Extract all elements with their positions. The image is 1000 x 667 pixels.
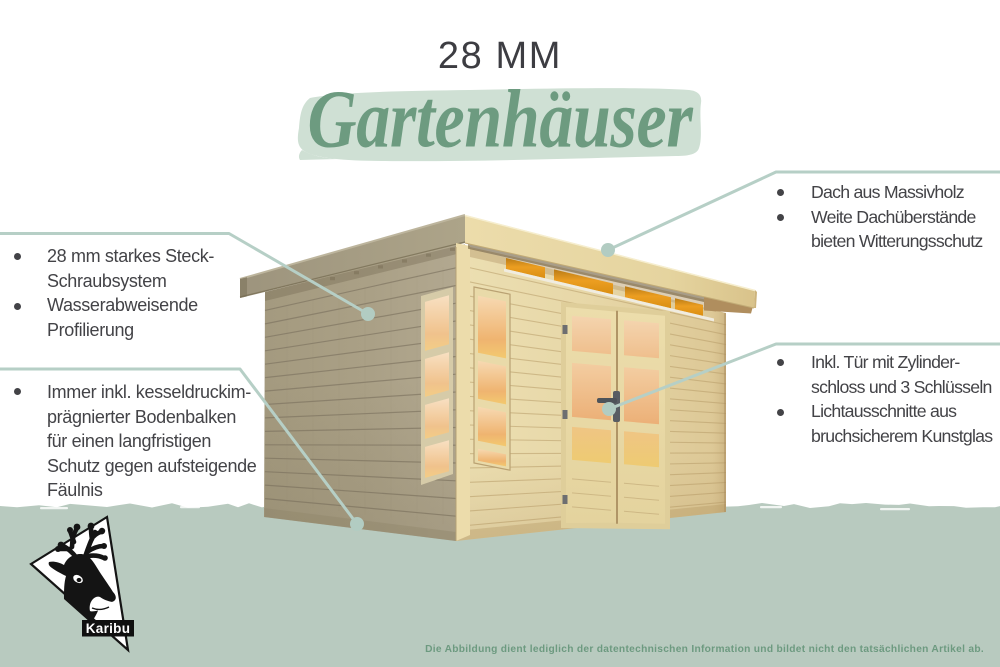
svg-text:Die Abbildung dient lediglich: Die Abbildung dient lediglich der datent… [425, 644, 984, 655]
svg-text:Karibu: Karibu [86, 621, 131, 636]
